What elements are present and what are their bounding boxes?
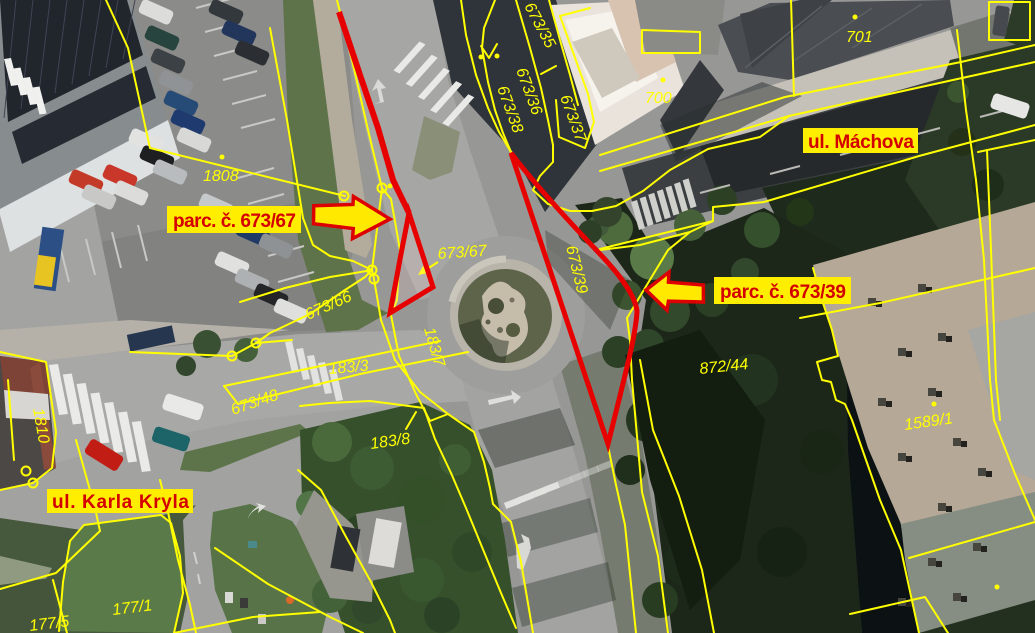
svg-text:ul. Karla Kryla: ul. Karla Kryla xyxy=(52,492,189,513)
svg-text:673/67: 673/67 xyxy=(437,243,488,263)
svg-text:parc. č. 673/67: parc. č. 673/67 xyxy=(173,211,296,232)
svg-text:701: 701 xyxy=(846,29,873,46)
svg-text:1808: 1808 xyxy=(203,168,239,185)
svg-text:700: 700 xyxy=(645,90,672,107)
svg-text:183/3: 183/3 xyxy=(328,358,369,378)
svg-text:ul. Máchova: ul. Máchova xyxy=(808,132,914,153)
svg-text:parc. č. 673/39: parc. č. 673/39 xyxy=(720,282,846,303)
